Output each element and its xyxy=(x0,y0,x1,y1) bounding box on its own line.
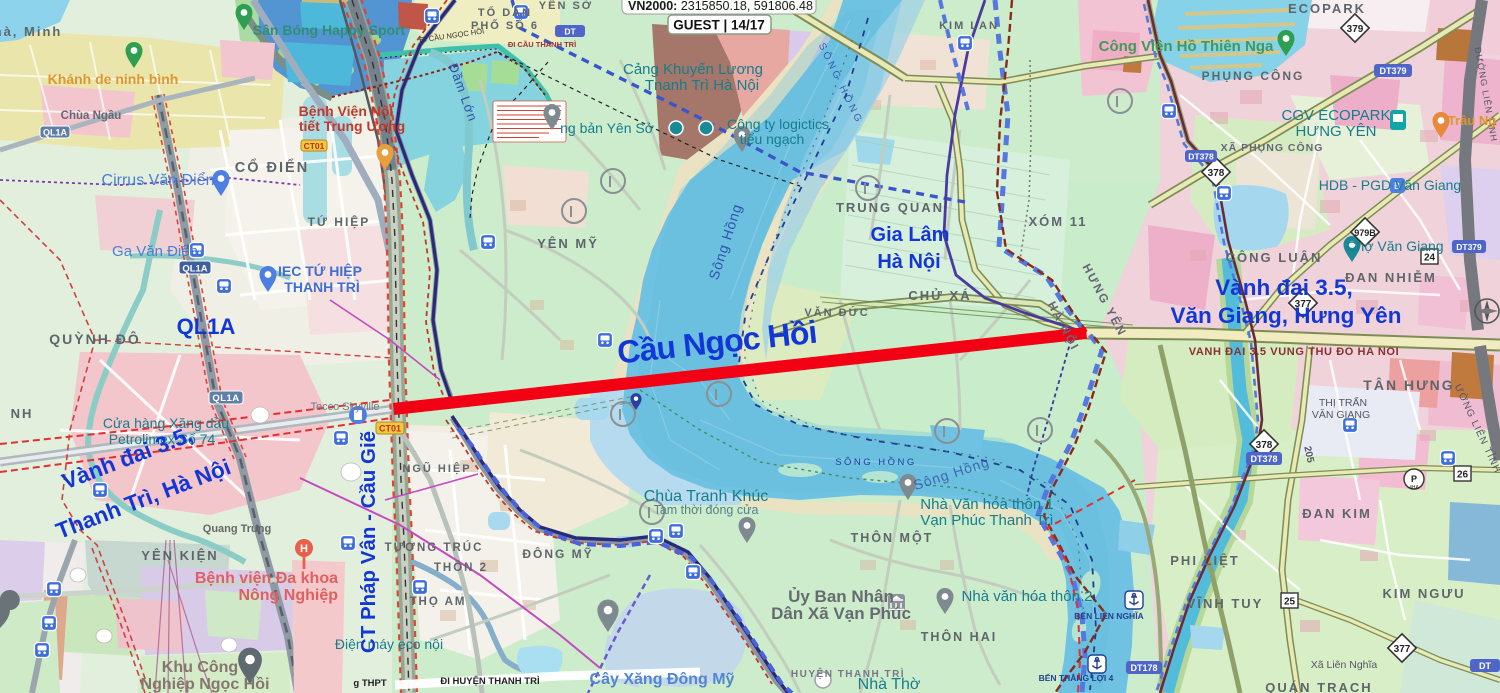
svg-text:DT379: DT379 xyxy=(1379,66,1406,76)
svg-text:QL1A: QL1A xyxy=(212,393,239,404)
svg-text:THANH TRÌ: THANH TRÌ xyxy=(284,279,360,295)
svg-text:QL1A: QL1A xyxy=(43,128,68,138)
svg-text:QUÁN TRẠCH: QUÁN TRẠCH xyxy=(1265,680,1372,693)
svg-text:XÃ PHỤNG CÔNG: XÃ PHỤNG CÔNG xyxy=(1221,141,1324,154)
svg-text:YÊN SỞ: YÊN SỞ xyxy=(539,0,593,12)
svg-text:SÔNG HỒNG: SÔNG HỒNG xyxy=(835,456,917,468)
svg-text:Xã Liên Nghĩa: Xã Liên Nghĩa xyxy=(1311,659,1378,671)
svg-text:Nhà văn hóa thôn 2: Nhà văn hóa thôn 2 xyxy=(962,588,1093,605)
svg-text:Cửa hàng Xăng dầu: Cửa hàng Xăng dầu xyxy=(103,415,229,431)
svg-text:Khánh de ninh bình: Khánh de ninh bình xyxy=(48,71,179,87)
svg-text:KIM LAN: KIM LAN xyxy=(939,20,999,32)
svg-text:377: 377 xyxy=(1394,644,1411,655)
svg-text:NGŨ HIỆP: NGŨ HIỆP xyxy=(402,462,471,475)
svg-text:BẾN LIÊN NGHĨA: BẾN LIÊN NGHĨA xyxy=(1074,610,1143,621)
svg-text:ng bản Yên Sở: ng bản Yên Sở xyxy=(560,120,654,136)
svg-text:378: 378 xyxy=(1256,440,1273,451)
svg-text:DT378: DT378 xyxy=(1250,454,1277,464)
svg-text:HƯNG YÊN: HƯNG YÊN xyxy=(1296,123,1377,140)
svg-text:Gia Lâm: Gia Lâm xyxy=(871,224,950,246)
svg-text:Ga Văn Điển: Ga Văn Điển xyxy=(112,243,198,260)
svg-text:ĐAN NHIỄM: ĐAN NHIỄM xyxy=(1345,270,1437,285)
svg-text:H: H xyxy=(300,543,308,555)
svg-text:378: 378 xyxy=(1208,168,1225,179)
svg-text:VĂN GIANG: VĂN GIANG xyxy=(1312,408,1370,421)
svg-text:THÔN 2: THÔN 2 xyxy=(434,561,488,574)
svg-text:ĐAN KIM: ĐAN KIM xyxy=(1302,506,1372,521)
svg-text:Văn Giang, Hưng Yên: Văn Giang, Hưng Yên xyxy=(1171,303,1402,328)
svg-text:Cảng Khuyến Lương: Cảng Khuyến Lương xyxy=(623,61,763,78)
svg-text:tiểu ngạch: tiểu ngạch xyxy=(740,131,805,147)
svg-text:Dân Xã Vạn Phúc: Dân Xã Vạn Phúc xyxy=(771,604,911,623)
svg-text:Quang Trung: Quang Trung xyxy=(203,523,271,535)
svg-text:DT: DT xyxy=(564,27,576,37)
svg-text:THỌ AM: THỌ AM xyxy=(410,596,467,608)
svg-text:P: P xyxy=(1411,474,1417,484)
svg-text:Cirrus Văn Điển: Cirrus Văn Điển xyxy=(102,171,215,189)
svg-text:24: 24 xyxy=(1424,253,1436,264)
svg-text:CHỬ XÁ: CHỬ XÁ xyxy=(908,288,971,303)
svg-text:Tnanh Trì Hà Nội: Tnanh Trì Hà Nội xyxy=(645,77,759,94)
svg-text:Tecco Skyville: Tecco Skyville xyxy=(310,401,379,413)
svg-text:Bệnh Viện Nội: Bệnh Viện Nội xyxy=(299,103,394,119)
svg-text:THÔN HAI: THÔN HAI xyxy=(921,629,997,644)
svg-text:Trâu Ng: Trâu Ng xyxy=(1448,113,1496,128)
svg-text:Hà Nội: Hà Nội xyxy=(877,251,940,273)
svg-text:4HA: 4HA xyxy=(1409,485,1419,491)
svg-text:QUỲNH ĐÔ: QUỲNH ĐÔ xyxy=(49,330,140,347)
svg-text:Nhà Văn hóa thôn 1: Nhà Văn hóa thôn 1 xyxy=(920,496,1053,513)
svg-text:VANH ĐAI 3.5 VUNG THU ĐO HA NO: VANH ĐAI 3.5 VUNG THU ĐO HA NOI xyxy=(1189,346,1400,358)
svg-text:NH: NH xyxy=(11,406,34,421)
svg-text:Bệnh viện Đa khoa: Bệnh viện Đa khoa xyxy=(195,570,338,587)
svg-text:ĐI CẦU THANH TRÌ: ĐI CẦU THANH TRÌ xyxy=(508,39,576,49)
svg-text:TÂN HƯNG: TÂN HƯNG xyxy=(1363,376,1454,393)
svg-text:PHỤNG CÔNG: PHỤNG CÔNG xyxy=(1202,68,1305,83)
svg-text:Chùa Ngầu: Chùa Ngầu xyxy=(61,110,122,122)
svg-text:Sân Bóng Happy Sport: Sân Bóng Happy Sport xyxy=(253,22,406,38)
svg-text:TỨ HIỆP: TỨ HIỆP xyxy=(308,214,371,229)
svg-text:YÊN KIỆN: YÊN KIỆN xyxy=(141,548,218,563)
svg-text:TƯƠNG TRÚC: TƯƠNG TRÚC xyxy=(385,541,484,554)
svg-text:DT378: DT378 xyxy=(1188,152,1214,162)
svg-text:VĨNH TUY: VĨNH TUY xyxy=(1187,596,1264,611)
svg-text:KIM NGƯU: KIM NGƯU xyxy=(1382,586,1465,601)
svg-text:Công Viên Hồ Thiên Nga: Công Viên Hồ Thiên Nga xyxy=(1099,38,1274,55)
svg-text:DT: DT xyxy=(1479,661,1491,671)
svg-text:25: 25 xyxy=(1284,597,1296,608)
svg-text:Chợ Văn Giang: Chợ Văn Giang xyxy=(1346,238,1443,254)
svg-text:379: 379 xyxy=(1347,24,1364,35)
svg-text:g THPT: g THPT xyxy=(353,678,386,689)
svg-text:ĐI HUYỆN THANH TRÌ: ĐI HUYỆN THANH TRÌ xyxy=(440,675,540,687)
svg-text:Công ty logictics: Công ty logictics xyxy=(727,116,829,132)
svg-text:YÊN MỸ: YÊN MỸ xyxy=(537,236,599,251)
svg-text:CT Pháp Vân - Cầu Giẽ: CT Pháp Vân - Cầu Giẽ xyxy=(357,431,380,653)
svg-text:26: 26 xyxy=(1457,470,1469,481)
svg-text:ECOPARK: ECOPARK xyxy=(1288,1,1366,16)
svg-text:Khu Công: Khu Công xyxy=(162,659,238,676)
svg-text:TỔ DÂN: TỔ DÂN xyxy=(478,6,532,19)
svg-text:CT01: CT01 xyxy=(304,141,325,151)
svg-text:QL1A: QL1A xyxy=(177,314,236,339)
svg-text:BẾN THẮNG LỢI 4: BẾN THẮNG LỢI 4 xyxy=(1039,673,1114,683)
svg-text:HUYỆN THANH TRÌ: HUYỆN THANH TRÌ xyxy=(791,667,905,680)
svg-text:DT178: DT178 xyxy=(1130,663,1157,673)
svg-text:PHI LIỆT: PHI LIỆT xyxy=(1170,553,1239,568)
svg-text:IEC TỨ HIỆP: IEC TỨ HIỆP xyxy=(278,262,362,279)
svg-text:Điện máy eco nội: Điện máy eco nội xyxy=(335,636,443,652)
svg-text:DT379: DT379 xyxy=(1456,242,1482,252)
svg-text:hà, Minh: hà, Minh xyxy=(0,24,62,39)
svg-text:Nghiệp Ngọc Hồi: Nghiệp Ngọc Hồi xyxy=(141,676,270,693)
svg-text:VN2000: 2315850.18, 591806.48: VN2000: 2315850.18, 591806.48 xyxy=(628,0,813,13)
svg-text:QL1A: QL1A xyxy=(182,264,207,275)
svg-text:ĐÔNG MỸ: ĐÔNG MỸ xyxy=(522,546,593,561)
svg-text:Vành đai 3.5,: Vành đai 3.5, xyxy=(1215,275,1353,300)
svg-text:THỊ TRẤN: THỊ TRẤN xyxy=(1319,396,1367,409)
svg-text:Cây Xăng Đông Mỹ: Cây Xăng Đông Mỹ xyxy=(590,671,735,688)
svg-text:XÓM 11: XÓM 11 xyxy=(1029,214,1088,229)
svg-text:CÔNG LUẬN: CÔNG LUẬN xyxy=(1226,250,1323,265)
svg-text:CGV ECOPARK: CGV ECOPARK xyxy=(1282,107,1391,124)
svg-text:Nông Nghiệp: Nông Nghiệp xyxy=(238,587,338,604)
svg-text:GUEST | 14/17: GUEST | 14/17 xyxy=(673,18,765,33)
svg-text:CT01: CT01 xyxy=(379,424,401,434)
svg-text:TRUNG QUAN: TRUNG QUAN xyxy=(836,200,944,215)
svg-text:THÔN MỘT: THÔN MỘT xyxy=(851,530,934,545)
svg-text:tiết Trung Ương: tiết Trung Ương xyxy=(299,118,405,134)
svg-text:Vạn Phúc Thanh Trì: Vạn Phúc Thanh Trì xyxy=(920,512,1053,529)
svg-text:CỔ ĐIỂN: CỔ ĐIỂN xyxy=(235,158,309,176)
svg-text:Tam thời đóng cửa: Tam thời đóng cửa xyxy=(654,503,759,517)
svg-text:979B: 979B xyxy=(1354,228,1376,238)
svg-text:HDB - PGD Văn Giang: HDB - PGD Văn Giang xyxy=(1319,177,1461,193)
